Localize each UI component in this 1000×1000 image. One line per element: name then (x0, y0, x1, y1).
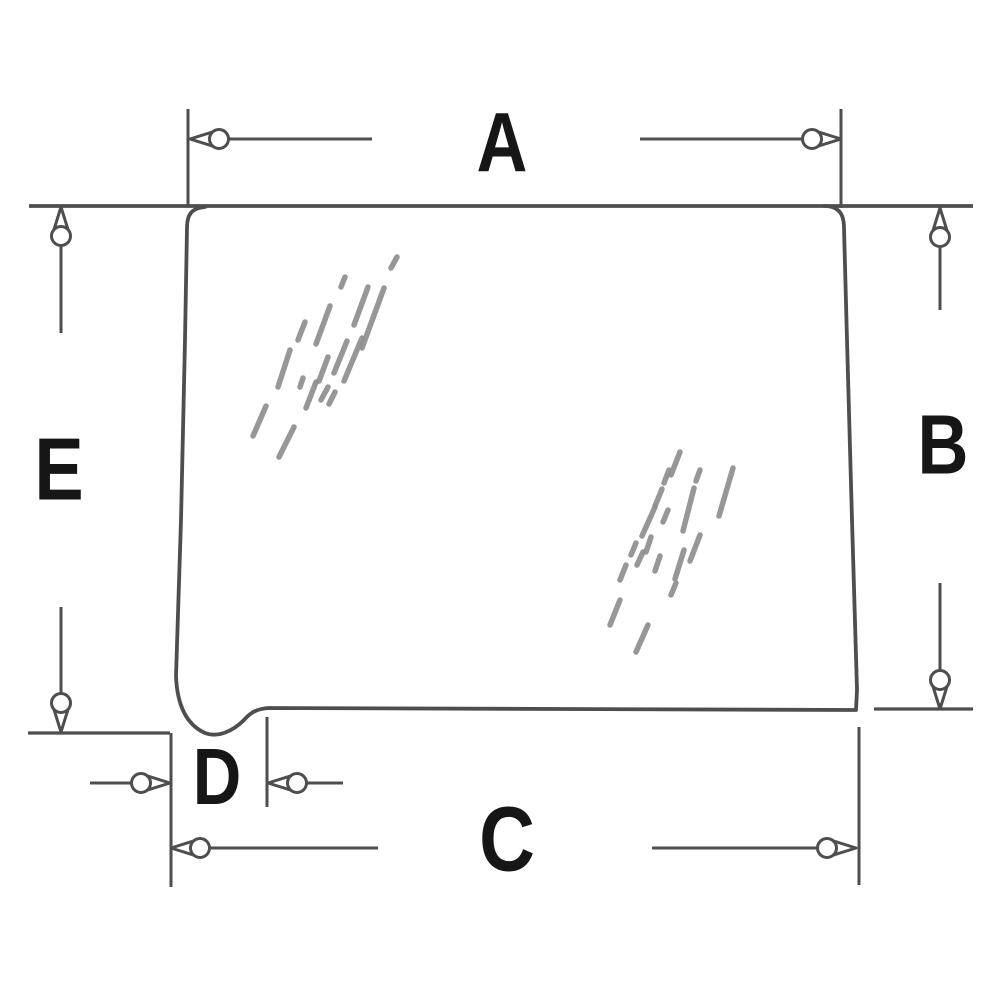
glass-shine-center-right (636, 625, 648, 652)
glass-shine-upper-left (306, 382, 316, 408)
dim-label-d: D (193, 737, 242, 817)
glass-shine-center-right (610, 600, 620, 625)
glass-shine-upper-left (279, 427, 294, 457)
glass-shine-upper-left (278, 350, 290, 387)
glass-shine-center-right (719, 468, 733, 516)
dim-label-a: A (477, 101, 528, 185)
glass-shine-upper-left (321, 387, 328, 400)
dim-d-right-arrow-ring (288, 774, 307, 793)
glass-panel-dimension-diagram: A B C D E (0, 0, 1000, 1000)
glass-shine-center-right (655, 489, 662, 506)
dim-a-right-arrow-ring (803, 130, 822, 149)
glass-shine-upper-left (300, 378, 303, 387)
dim-b-top-arrow-ring (931, 228, 950, 247)
glass-shine-center-right (671, 452, 680, 475)
glass-shine-upper-left (319, 357, 328, 381)
dim-e-top-arrow-ring (52, 227, 71, 246)
glass-shine-center-right (675, 550, 684, 579)
glass-shine-center-right (683, 488, 694, 531)
glass-shine-upper-left (329, 392, 335, 404)
glass-shine-center-right (646, 537, 651, 552)
dim-b-bottom-arrow-ring (931, 671, 950, 690)
glass-shine-center-right (690, 535, 700, 561)
dim-e-bottom-arrow-ring (52, 694, 71, 713)
dim-label-e: E (34, 425, 83, 513)
glass-shine-upper-left (354, 287, 368, 325)
glass-shine-center-right (696, 470, 700, 481)
dim-d-left-arrow-ring (132, 774, 151, 793)
glass-shine-center-right (663, 510, 668, 522)
glass-shine-center-right (671, 583, 676, 595)
glass-shine-center-right (631, 543, 636, 555)
dim-label-b: B (918, 403, 969, 487)
glass-shine-center-right (664, 470, 669, 483)
glass-shine-upper-left (298, 322, 305, 340)
glass-shine-center-right (655, 556, 660, 571)
glass-shine-center-right (637, 552, 643, 565)
glass-shine-upper-left (334, 341, 347, 373)
glass-shine-upper-left (316, 306, 330, 344)
dim-c-left-arrow-ring (191, 839, 210, 858)
glass-shine-upper-left (341, 277, 345, 287)
glass-shine-upper-left (391, 257, 397, 268)
glass-shine-center-right (620, 565, 626, 580)
glass-shine-upper-left (253, 406, 266, 436)
dim-a-left-arrow-ring (210, 130, 229, 149)
glass-shine-center-right (642, 507, 655, 536)
dim-c-right-arrow-ring (818, 839, 837, 858)
glass-outline (176, 206, 857, 735)
dim-label-c: C (479, 793, 535, 885)
